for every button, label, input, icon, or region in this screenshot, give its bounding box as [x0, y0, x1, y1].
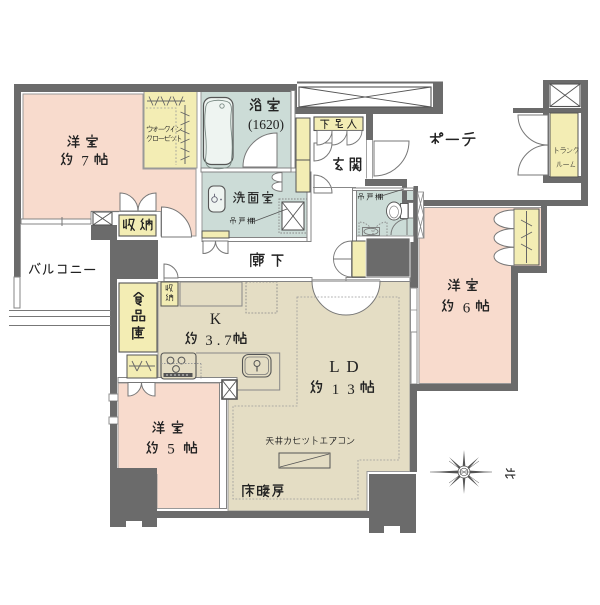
- svg-text:3: 3: [347, 382, 355, 398]
- svg-text:5: 5: [167, 442, 175, 458]
- svg-text:L: L: [329, 357, 339, 376]
- svg-text:7: 7: [224, 333, 231, 349]
- svg-text:7: 7: [81, 154, 89, 170]
- svg-text:6: 6: [463, 301, 471, 317]
- svg-text:K: K: [210, 311, 222, 328]
- svg-text:D: D: [346, 357, 358, 376]
- svg-text:3: 3: [205, 333, 212, 349]
- svg-text:.: .: [217, 333, 221, 349]
- svg-text:1: 1: [332, 382, 340, 398]
- svg-text:(1620): (1620): [248, 117, 284, 132]
